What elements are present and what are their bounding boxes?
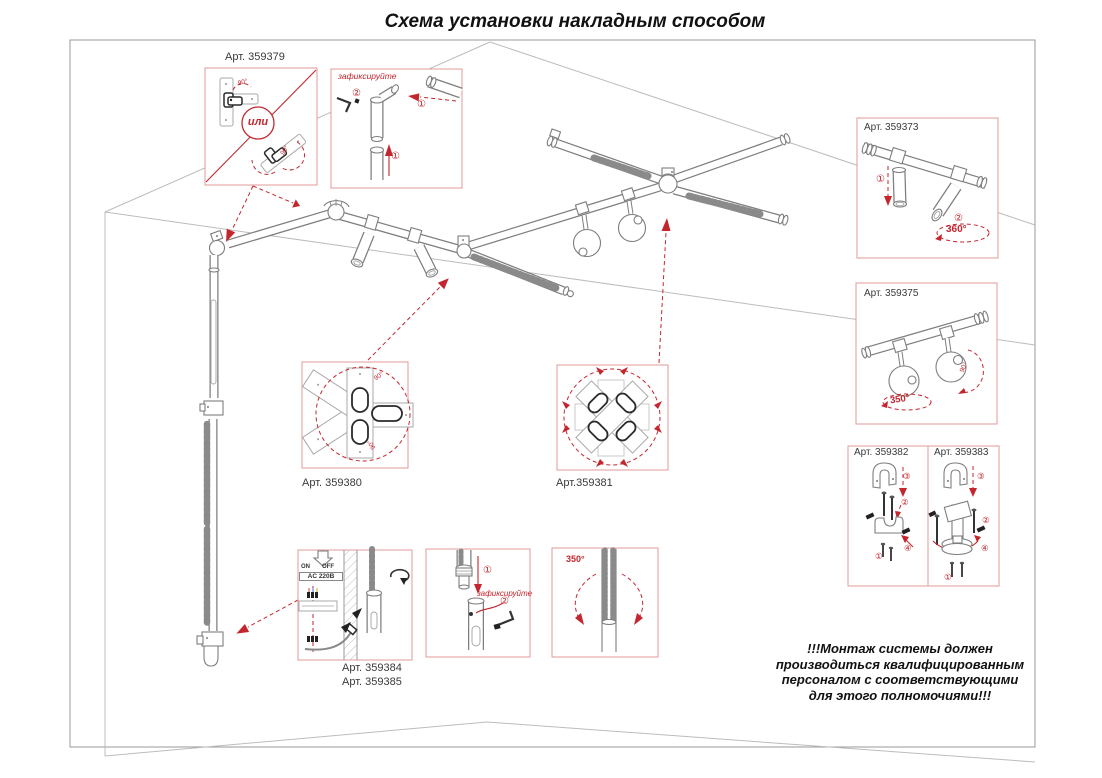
panel-359380 (302, 362, 413, 468)
deg-360-label: 360° (946, 224, 967, 235)
panel-359375 (856, 283, 997, 424)
label-art-359381: Арт.359381 (556, 477, 613, 489)
step-2-mark: ② (352, 88, 361, 99)
installation-warning-text: !!!Монтаж системы должен производиться к… (760, 641, 1040, 703)
step-1-mark: ① (391, 151, 400, 162)
step-1-mark: ① (417, 99, 426, 110)
page-title: Схема установки накладным способом (360, 11, 790, 33)
or-label: или (243, 116, 273, 128)
panel-359384-385 (298, 549, 412, 660)
panel-359382 (848, 446, 928, 586)
terminal-block-icon (307, 636, 318, 642)
label-art-359382: Арт. 359382 (854, 447, 908, 458)
label-art-359383: Арт. 359383 (934, 447, 988, 458)
label-art-359375: Арт. 359375 (864, 288, 918, 299)
panel-350-rotation (552, 548, 658, 657)
step-1-mark: ① (483, 565, 492, 576)
step-2-mark: ② (954, 213, 963, 224)
deg-350-label: 350° (566, 554, 585, 564)
label-art-359385: Арт. 359385 (342, 676, 402, 688)
cross-junction (659, 168, 677, 193)
step-3-mark: ③ (977, 471, 985, 482)
label-art-359380: Арт. 359380 (302, 477, 362, 489)
label-art-359379: Арт. 359379 (225, 51, 285, 63)
panel-359381 (557, 365, 668, 470)
step-2-mark: ② (500, 596, 509, 607)
crossing-joint (457, 236, 471, 258)
corner-pole-drawing (197, 255, 223, 666)
on-label: ON (301, 564, 310, 570)
label-art-359384: Арт. 359384 (342, 662, 402, 674)
panel-359373 (857, 118, 998, 258)
step-1-mark: ① (876, 174, 885, 185)
panel-fix-pole (426, 549, 530, 657)
panel-fix-connector (331, 69, 462, 188)
step-1-mark: ① (875, 551, 883, 562)
label-art-359373: Арт. 359373 (864, 122, 918, 133)
step-3-mark: ③ (903, 471, 911, 482)
step-4-mark: ④ (904, 543, 912, 554)
installation-scheme-page: Схема установки накладным способом Арт. … (0, 0, 1102, 778)
step-2-mark: ② (982, 515, 990, 526)
step-2-mark: ② (901, 497, 909, 508)
off-label: OFF (322, 564, 334, 570)
corner-elbow-joint (210, 231, 225, 256)
step-4-mark: ④ (981, 543, 989, 554)
fix-label-top: зафиксируйте (338, 71, 397, 81)
step-1-mark: ① (944, 572, 952, 583)
ac-voltage-label: AC 220В (299, 572, 343, 581)
